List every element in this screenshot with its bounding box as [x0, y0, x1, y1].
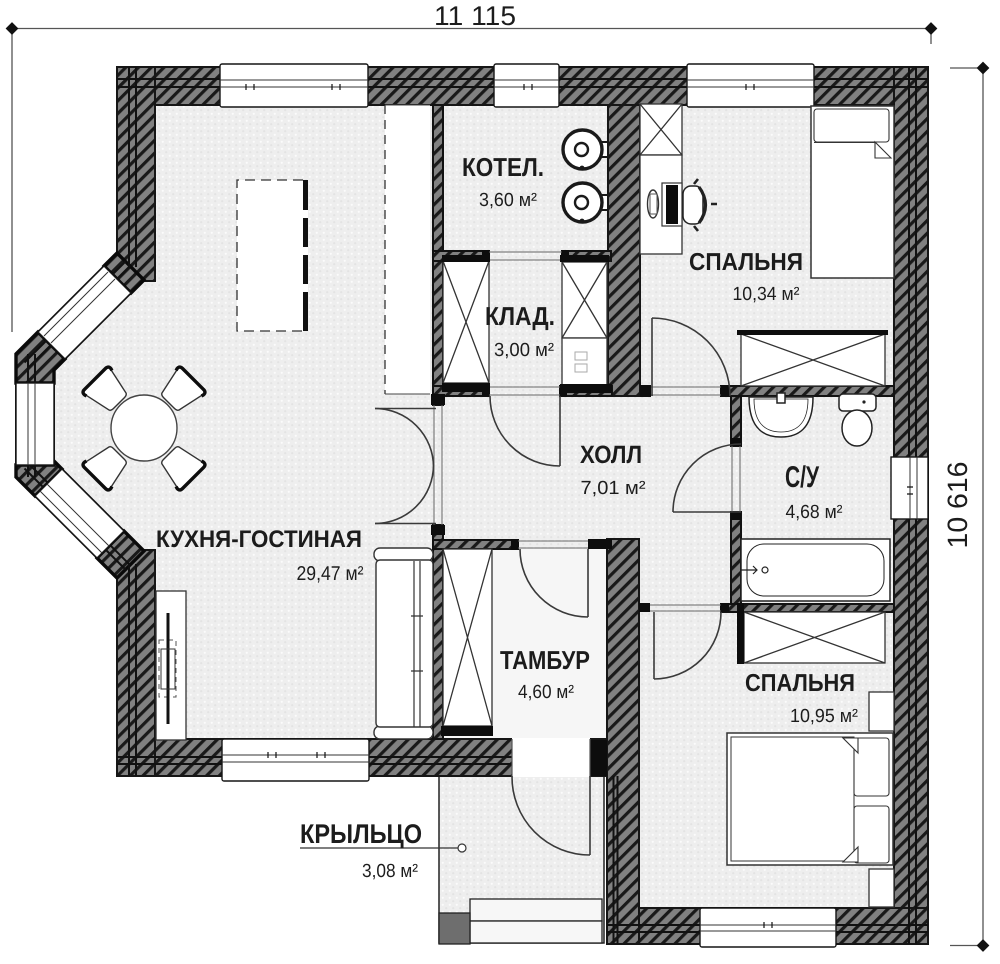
svg-text:СПАЛЬНЯ: СПАЛЬНЯ [745, 670, 855, 697]
svg-text:10,95 м²: 10,95 м² [790, 706, 858, 727]
svg-text:ХОЛЛ: ХОЛЛ [580, 441, 642, 469]
svg-text:КОТЕЛ.: КОТЕЛ. [462, 152, 544, 182]
svg-text:3,00 м²: 3,00 м² [494, 340, 554, 361]
svg-text:ТАМБУР: ТАМБУР [500, 645, 590, 675]
svg-text:3,60 м²: 3,60 м² [479, 190, 537, 211]
svg-text:10 616: 10 616 [942, 462, 973, 549]
svg-text:КЛАД.: КЛАД. [485, 301, 555, 331]
svg-text:СПАЛЬНЯ: СПАЛЬНЯ [689, 249, 803, 276]
svg-text:7,01 м²: 7,01 м² [581, 478, 646, 499]
svg-text:4,60 м²: 4,60 м² [518, 682, 574, 703]
svg-text:11 115: 11 115 [434, 1, 516, 31]
svg-text:С/У: С/У [785, 461, 819, 494]
svg-text:3,08 м²: 3,08 м² [362, 861, 418, 882]
svg-text:КУХНЯ-ГОСТИНАЯ: КУХНЯ-ГОСТИНАЯ [156, 526, 362, 553]
svg-text:4,68 м²: 4,68 м² [786, 502, 843, 523]
svg-text:29,47 м²: 29,47 м² [297, 563, 364, 585]
svg-text:10,34 м²: 10,34 м² [733, 284, 800, 305]
svg-text:КРЫЛЬЦО: КРЫЛЬЦО [300, 819, 422, 849]
